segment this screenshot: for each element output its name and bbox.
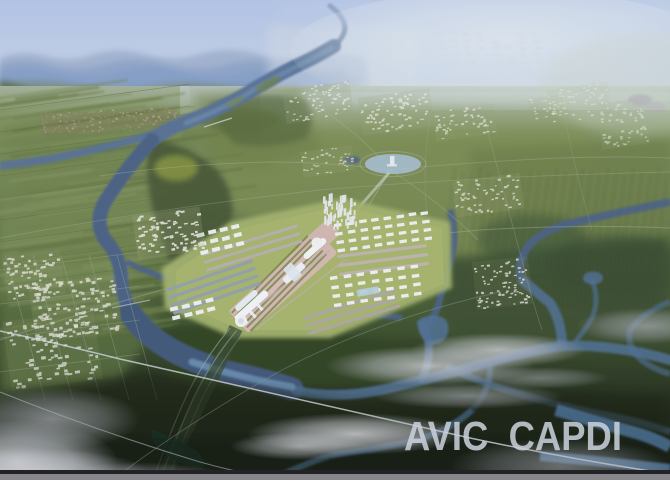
svg-text:AVIC CAPDI: AVIC CAPDI — [404, 413, 622, 459]
